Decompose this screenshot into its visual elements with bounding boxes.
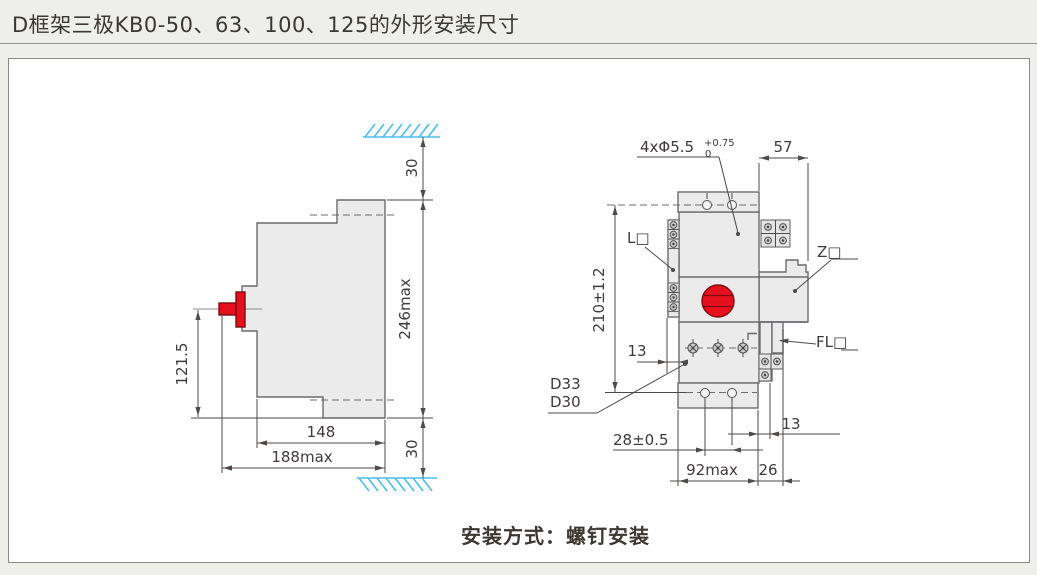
dim-width-chain: 92max 26 (670, 461, 800, 484)
top-mounting-plate (678, 192, 759, 212)
dim-label-right-ext: 26 (758, 461, 777, 479)
right-terminal-block (761, 220, 790, 247)
dim-label-height-max: 246max (396, 278, 414, 339)
side-body-profile (242, 200, 385, 418)
fl-accessory-upper (772, 322, 783, 353)
dim-label-depth: 148 (307, 423, 336, 441)
technical-drawing: 30 246max 30 121.5 148 188max (0, 0, 1037, 575)
label-left-accessory: L□ (627, 229, 650, 247)
dim-right-gap: 13 (728, 415, 840, 437)
dim-label-depth-max: 188max (271, 448, 332, 466)
dim-mount-height: 210±1.2 (590, 205, 618, 392)
side-view: 30 246max 30 121.5 148 188max (173, 124, 440, 491)
dim-handle-height: 121.5 (173, 310, 201, 417)
front-view: 4xΦ5.5 +0.75 0 57 210±1.2 (548, 138, 858, 486)
label-right-accessory: Z□ (817, 243, 841, 261)
mounting-method-caption: 安装方式：螺钉安装 (461, 520, 650, 549)
hole-callout-text: 4xΦ5.5 (640, 138, 694, 156)
dim-depth-max: 188max (222, 448, 385, 471)
bottom-mounting-hatch (357, 478, 437, 491)
operating-knob (219, 292, 245, 327)
hole-callout-tol-minus: 0 (705, 149, 711, 160)
fl-terminal-block (759, 354, 783, 381)
bottom-mounting-plate (678, 383, 758, 408)
dim-label-top-width: 57 (773, 138, 792, 156)
dim-label-bottom-clearance: 30 (403, 439, 421, 458)
page: { "title": "D框架三极KB0-50、63、100、125的外形安装尺… (0, 0, 1037, 575)
dim-label-handle-height: 121.5 (173, 343, 191, 386)
dim-label-hole-spacing: 28±0.5 (613, 431, 669, 449)
dim-height-chain: 30 246max 30 (396, 137, 426, 478)
top-mounting-hatch (363, 124, 440, 137)
label-fl-accessory: FL□ (816, 333, 847, 351)
dim-label-top-clearance: 30 (403, 158, 421, 177)
dim-label-terminal-offset: 13 (627, 342, 646, 360)
z-accessory-block (759, 260, 808, 322)
label-frame-d33: D33 (550, 375, 581, 393)
dim-depth: 148 (257, 423, 385, 446)
dim-label-mount-height: 210±1.2 (590, 267, 608, 332)
stop-button (702, 285, 734, 317)
dim-label-right-gap: 13 (781, 415, 800, 433)
hole-callout-tol-plus: +0.75 (704, 138, 735, 149)
dim-label-width-max: 92max (686, 461, 738, 479)
label-frame-d30: D30 (550, 393, 581, 411)
